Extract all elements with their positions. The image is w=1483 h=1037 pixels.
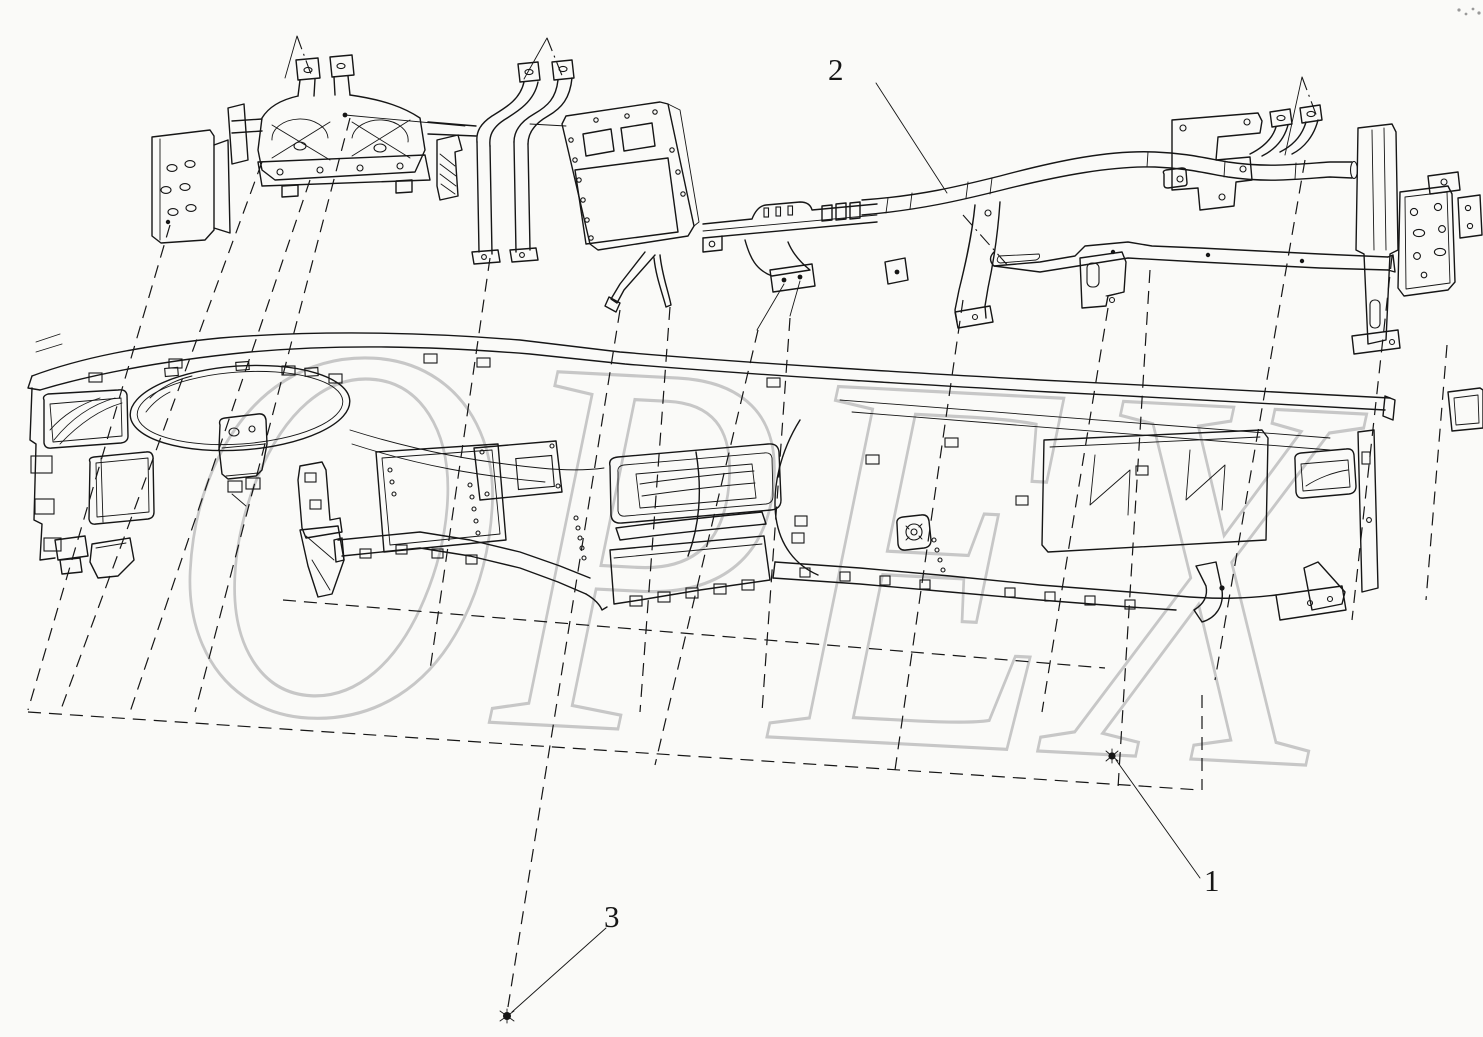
hatched-bracket xyxy=(437,135,462,200)
far-right-frame xyxy=(1448,388,1483,431)
artifact-dots xyxy=(1457,8,1480,16)
lower-rail xyxy=(991,242,1396,272)
center-duct-bracket xyxy=(258,55,430,197)
screw-icon xyxy=(500,1009,514,1023)
left-mount-bracket xyxy=(152,104,248,243)
callout-2-label: 2 xyxy=(828,52,844,87)
callout-3: 3 xyxy=(500,899,620,1023)
cross-beam-tube xyxy=(862,152,1358,215)
left-demister-vent xyxy=(44,390,129,448)
callout-1-label: 1 xyxy=(1204,863,1220,898)
callout-2: 2 xyxy=(828,52,947,193)
right-end-bracket xyxy=(1352,124,1400,354)
parts-diagram-page: OPEX xyxy=(0,0,1483,1037)
center-plate xyxy=(562,102,699,250)
panel-left-end xyxy=(30,388,134,578)
callout-3-label: 3 xyxy=(604,899,620,934)
right-end-plate xyxy=(1398,172,1482,296)
left-square-opening xyxy=(89,452,154,524)
exploded-parts-diagram: OPEX xyxy=(0,0,1483,1037)
s-strap-channel xyxy=(472,60,574,264)
right-step-bracket xyxy=(1172,113,1262,210)
